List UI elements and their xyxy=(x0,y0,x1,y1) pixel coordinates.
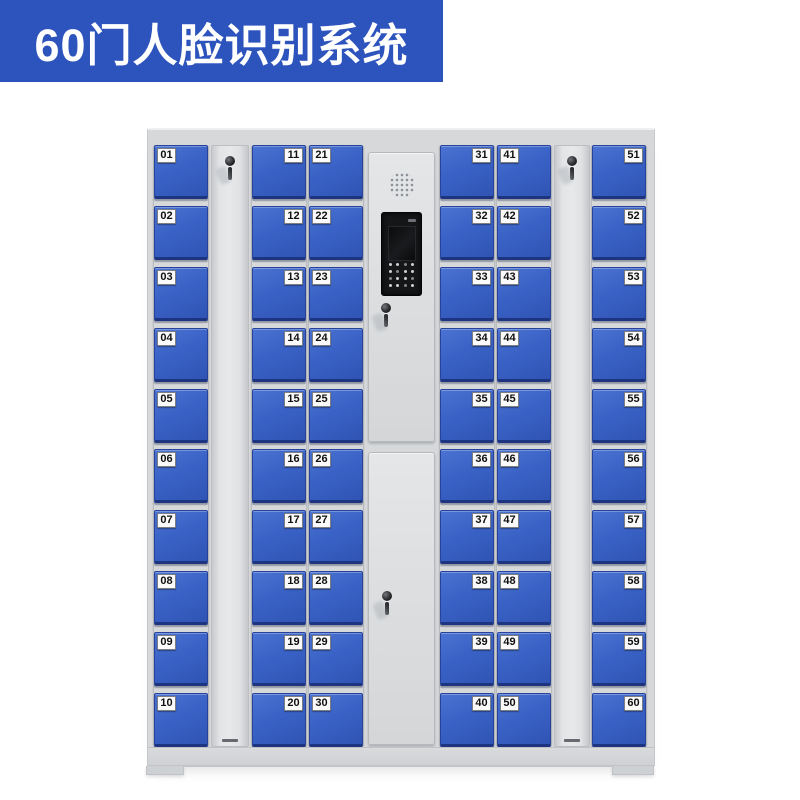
locker-door-34[interactable]: 34 xyxy=(440,328,494,382)
door-number-plate: 55 xyxy=(624,392,643,407)
locker-door-17[interactable]: 17 xyxy=(252,510,306,564)
locker-door-06[interactable]: 06 xyxy=(154,449,208,503)
door-number-plate: 19 xyxy=(284,635,303,650)
door-number-plate: 21 xyxy=(312,148,331,163)
door-number-plate: 48 xyxy=(500,574,519,589)
locker-cabinet: 0102030405060708091011121314151617181920… xyxy=(147,128,655,767)
locker-door-02[interactable]: 02 xyxy=(154,206,208,260)
locker-door-09[interactable]: 09 xyxy=(154,632,208,686)
keypad-key[interactable] xyxy=(389,284,392,287)
keyhole-icon[interactable] xyxy=(382,591,392,601)
door-number-plate: 07 xyxy=(157,513,176,528)
side-lock-strip-1 xyxy=(211,145,249,747)
keypad-key[interactable] xyxy=(411,277,414,280)
locker-door-35[interactable]: 35 xyxy=(440,389,494,443)
door-number-plate: 34 xyxy=(472,331,491,346)
keypad-key[interactable] xyxy=(389,263,392,266)
door-number-plate: 59 xyxy=(624,635,643,650)
locker-door-26[interactable]: 26 xyxy=(309,449,363,503)
keypad-key[interactable] xyxy=(396,277,399,280)
locker-door-33[interactable]: 33 xyxy=(440,267,494,321)
product-banner: 60门人脸识别系统 xyxy=(0,0,443,82)
door-column-3: 21222324252627282930 xyxy=(309,145,363,747)
locker-door-04[interactable]: 04 xyxy=(154,328,208,382)
keypad-key[interactable] xyxy=(411,270,414,273)
locker-door-24[interactable]: 24 xyxy=(309,328,363,382)
door-number-plate: 18 xyxy=(284,574,303,589)
control-panel xyxy=(366,145,437,747)
door-number-plate: 22 xyxy=(312,209,331,224)
door-number-plate: 16 xyxy=(284,452,303,467)
locker-door-41[interactable]: 41 xyxy=(497,145,551,199)
face-recognition-terminal[interactable] xyxy=(381,212,422,296)
locker-door-22[interactable]: 22 xyxy=(309,206,363,260)
keypad-key[interactable] xyxy=(411,284,414,287)
door-number-plate: 42 xyxy=(500,209,519,224)
door-number-plate: 14 xyxy=(284,331,303,346)
locker-door-08[interactable]: 08 xyxy=(154,571,208,625)
door-number-plate: 23 xyxy=(312,270,331,285)
keypad-key[interactable] xyxy=(404,284,407,287)
locker-door-46[interactable]: 46 xyxy=(497,449,551,503)
door-number-plate: 30 xyxy=(312,696,331,711)
keypad-key[interactable] xyxy=(396,270,399,273)
door-lock-lock-strip-1 xyxy=(225,156,235,180)
door-number-plate: 60 xyxy=(624,696,643,711)
door-number-plate: 01 xyxy=(157,148,176,163)
locker-door-52[interactable]: 52 xyxy=(592,206,646,260)
locker-door-50[interactable]: 50 xyxy=(497,693,551,747)
door-number-plate: 24 xyxy=(312,331,331,346)
locker-door-18[interactable]: 18 xyxy=(252,571,306,625)
locker-door-19[interactable]: 19 xyxy=(252,632,306,686)
door-number-plate: 38 xyxy=(472,574,491,589)
cabinet-foot-right xyxy=(612,766,654,775)
door-number-plate: 56 xyxy=(624,452,643,467)
locker-door-03[interactable]: 03 xyxy=(154,267,208,321)
locker-door-11[interactable]: 11 xyxy=(252,145,306,199)
keypad-key[interactable] xyxy=(389,270,392,273)
locker-door-56[interactable]: 56 xyxy=(592,449,646,503)
control-panel-door-lower[interactable] xyxy=(368,452,435,745)
door-number-plate: 37 xyxy=(472,513,491,528)
camera-window xyxy=(388,226,416,261)
door-lock-panel-upper xyxy=(381,303,391,327)
locker-door-37[interactable]: 37 xyxy=(440,510,494,564)
door-number-plate: 58 xyxy=(624,574,643,589)
door-number-plate: 29 xyxy=(312,635,331,650)
door-number-plate: 11 xyxy=(284,148,303,163)
door-number-plate: 53 xyxy=(624,270,643,285)
door-number-plate: 17 xyxy=(284,513,303,528)
locker-door-57[interactable]: 57 xyxy=(592,510,646,564)
cabinet-foot-left xyxy=(146,766,184,775)
locker-door-45[interactable]: 45 xyxy=(497,389,551,443)
door-number-plate: 08 xyxy=(157,574,176,589)
door-number-plate: 54 xyxy=(624,331,643,346)
locker-door-40[interactable]: 40 xyxy=(440,693,494,747)
door-number-plate: 32 xyxy=(472,209,491,224)
door-number-plate: 35 xyxy=(472,392,491,407)
locker-door-48[interactable]: 48 xyxy=(497,571,551,625)
locker-door-29[interactable]: 29 xyxy=(309,632,363,686)
locker-door-25[interactable]: 25 xyxy=(309,389,363,443)
locker-door-21[interactable]: 21 xyxy=(309,145,363,199)
door-number-plate: 02 xyxy=(157,209,176,224)
locker-door-20[interactable]: 20 xyxy=(252,693,306,747)
keypad-key[interactable] xyxy=(396,284,399,287)
locker-door-47[interactable]: 47 xyxy=(497,510,551,564)
door-column-4: 31323334353637383940 xyxy=(440,145,494,747)
locker-door-16[interactable]: 16 xyxy=(252,449,306,503)
locker-door-43[interactable]: 43 xyxy=(497,267,551,321)
keyhole-icon[interactable] xyxy=(225,156,235,166)
cabinet-interior: 0102030405060708091011121314151617181920… xyxy=(148,145,654,747)
door-number-plate: 09 xyxy=(157,635,176,650)
locker-door-27[interactable]: 27 xyxy=(309,510,363,564)
door-lock-lock-strip-2 xyxy=(567,156,577,180)
locker-door-36[interactable]: 36 xyxy=(440,449,494,503)
locker-door-31[interactable]: 31 xyxy=(440,145,494,199)
door-number-plate: 31 xyxy=(472,148,491,163)
door-number-plate: 52 xyxy=(624,209,643,224)
door-number-plate: 26 xyxy=(312,452,331,467)
door-number-plate: 44 xyxy=(500,331,519,346)
locker-door-44[interactable]: 44 xyxy=(497,328,551,382)
door-number-plate: 47 xyxy=(500,513,519,528)
locker-door-58[interactable]: 58 xyxy=(592,571,646,625)
door-number-plate: 10 xyxy=(157,696,176,711)
door-number-plate: 28 xyxy=(312,574,331,589)
door-number-plate: 57 xyxy=(624,513,643,528)
keyhole-icon[interactable] xyxy=(567,156,577,166)
door-number-plate: 05 xyxy=(157,392,176,407)
door-number-plate: 51 xyxy=(624,148,643,163)
keypad-key[interactable] xyxy=(404,277,407,280)
locker-door-38[interactable]: 38 xyxy=(440,571,494,625)
keypad-key[interactable] xyxy=(411,263,414,266)
door-number-plate: 27 xyxy=(312,513,331,528)
door-number-plate: 46 xyxy=(500,452,519,467)
terminal-speaker-slot xyxy=(408,219,416,222)
side-lock-strip-2 xyxy=(554,145,590,747)
locker-door-59[interactable]: 59 xyxy=(592,632,646,686)
door-lock-panel-lower xyxy=(382,591,392,615)
locker-door-23[interactable]: 23 xyxy=(309,267,363,321)
control-panel-door-upper[interactable] xyxy=(368,152,435,442)
locker-door-10[interactable]: 10 xyxy=(154,693,208,747)
door-number-plate: 03 xyxy=(157,270,176,285)
locker-door-14[interactable]: 14 xyxy=(252,328,306,382)
door-number-plate: 12 xyxy=(284,209,303,224)
locker-door-55[interactable]: 55 xyxy=(592,389,646,443)
door-number-plate: 33 xyxy=(472,270,491,285)
door-number-plate: 13 xyxy=(284,270,303,285)
locker-door-39[interactable]: 39 xyxy=(440,632,494,686)
locker-door-30[interactable]: 30 xyxy=(309,693,363,747)
locker-door-01[interactable]: 01 xyxy=(154,145,208,199)
locker-door-07[interactable]: 07 xyxy=(154,510,208,564)
cabinet-base xyxy=(148,747,654,767)
door-number-plate: 25 xyxy=(312,392,331,407)
locker-door-32[interactable]: 32 xyxy=(440,206,494,260)
keypad-key[interactable] xyxy=(404,263,407,266)
banner-title: 60门人脸识别系统 xyxy=(34,9,408,74)
door-number-plate: 15 xyxy=(284,392,303,407)
locker-door-28[interactable]: 28 xyxy=(309,571,363,625)
door-column-1: 01020304050607080910 xyxy=(154,145,208,747)
door-column-2: 11121314151617181920 xyxy=(252,145,306,747)
door-number-plate: 43 xyxy=(500,270,519,285)
locker-door-15[interactable]: 15 xyxy=(252,389,306,443)
keypad-key[interactable] xyxy=(389,277,392,280)
keypad-key[interactable] xyxy=(404,270,407,273)
keypad-key[interactable] xyxy=(396,263,399,266)
door-number-plate: 40 xyxy=(472,696,491,711)
door-column-6: 51525354555657585960 xyxy=(592,145,646,747)
keyhole-icon[interactable] xyxy=(381,303,391,313)
door-number-plate: 04 xyxy=(157,331,176,346)
door-column-5: 41424344454647484950 xyxy=(497,145,551,747)
door-number-plate: 45 xyxy=(500,392,519,407)
door-number-plate: 49 xyxy=(500,635,519,650)
locker-door-54[interactable]: 54 xyxy=(592,328,646,382)
door-number-plate: 20 xyxy=(284,696,303,711)
locker-door-13[interactable]: 13 xyxy=(252,267,306,321)
door-number-plate: 41 xyxy=(500,148,519,163)
locker-door-05[interactable]: 05 xyxy=(154,389,208,443)
door-number-plate: 50 xyxy=(500,696,519,711)
locker-door-49[interactable]: 49 xyxy=(497,632,551,686)
door-number-plate: 36 xyxy=(472,452,491,467)
locker-door-53[interactable]: 53 xyxy=(592,267,646,321)
locker-door-51[interactable]: 51 xyxy=(592,145,646,199)
door-number-plate: 06 xyxy=(157,452,176,467)
keypad-grid[interactable] xyxy=(389,263,414,287)
door-number-plate: 39 xyxy=(472,635,491,650)
speaker-grill-icon xyxy=(389,172,415,198)
locker-door-42[interactable]: 42 xyxy=(497,206,551,260)
locker-door-12[interactable]: 12 xyxy=(252,206,306,260)
locker-door-60[interactable]: 60 xyxy=(592,693,646,747)
